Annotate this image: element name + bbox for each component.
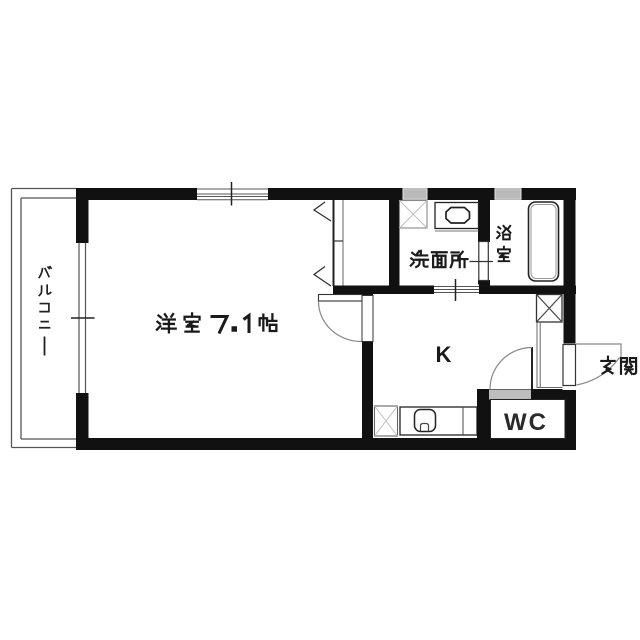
- svg-text:WC: WC: [504, 409, 548, 436]
- svg-text:K: K: [436, 342, 452, 367]
